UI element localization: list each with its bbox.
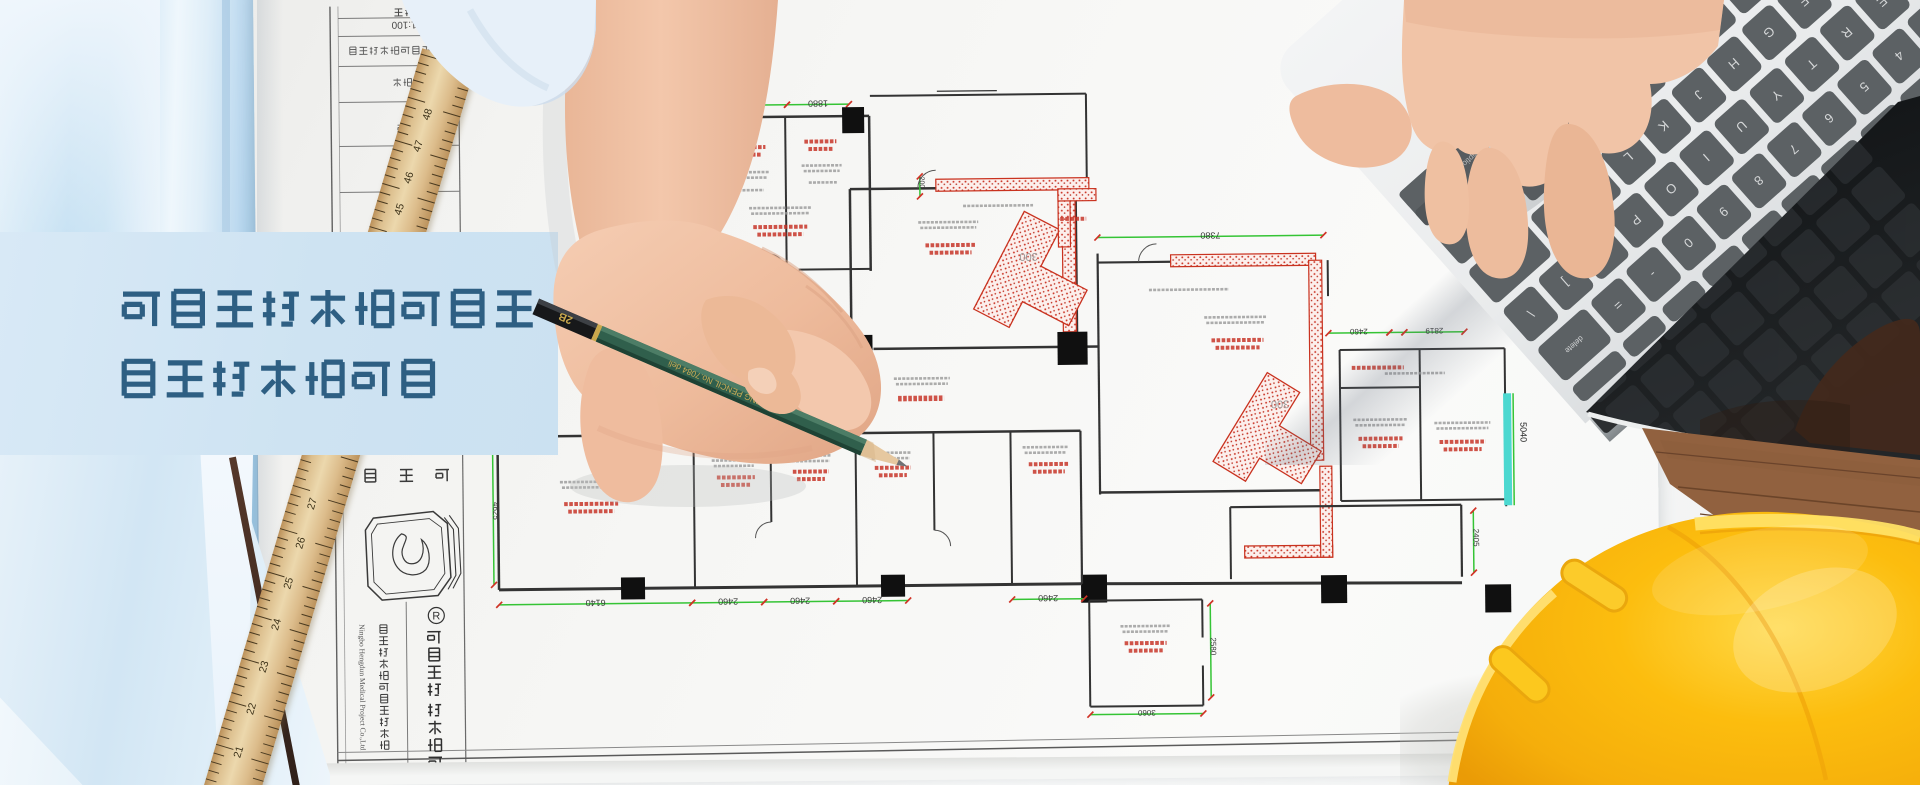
- svg-text:23: 23: [257, 659, 272, 674]
- svg-text:2460: 2460: [790, 596, 810, 606]
- svg-text:27: 27: [305, 496, 320, 511]
- svg-text:24: 24: [269, 617, 284, 632]
- svg-text:26: 26: [293, 536, 308, 551]
- svg-text:300: 300: [1019, 250, 1037, 262]
- svg-text:2460: 2460: [1038, 593, 1058, 603]
- svg-text:Ningbo Hengdun Medical Project: Ningbo Hengdun Medical Project Co.,Ltd: [357, 624, 367, 751]
- svg-text:2460: 2460: [718, 596, 738, 606]
- svg-text:25: 25: [281, 576, 296, 591]
- svg-text:2580: 2580: [1209, 637, 1218, 655]
- svg-text:7380: 7380: [1200, 230, 1220, 240]
- svg-text:6140: 6140: [586, 598, 606, 608]
- svg-text:21: 21: [231, 745, 246, 760]
- svg-text:3060: 3060: [1137, 708, 1155, 717]
- svg-text:R: R: [432, 610, 440, 622]
- svg-text:2460: 2460: [862, 595, 882, 605]
- svg-text:22: 22: [244, 701, 259, 716]
